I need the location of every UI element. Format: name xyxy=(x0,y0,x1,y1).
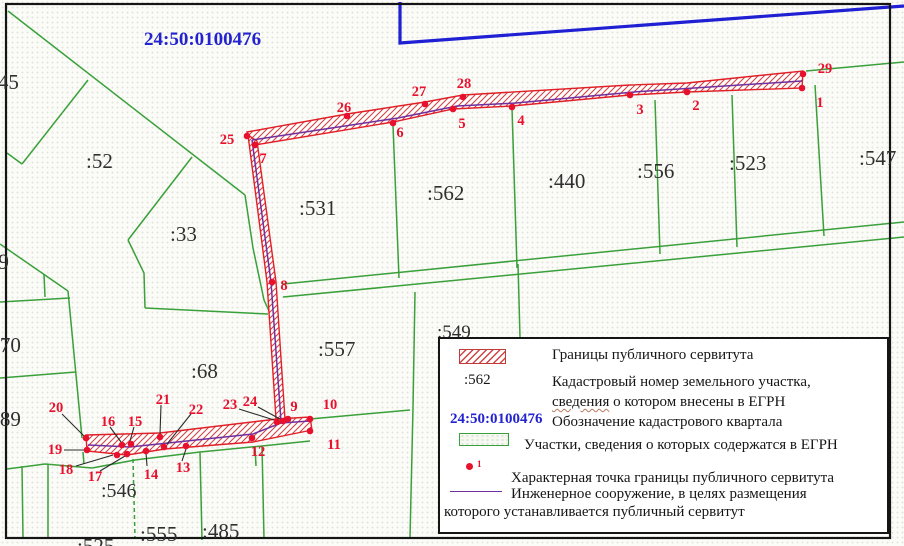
legend-engineering-label-line1: Инженерное сооружение, в целях размещени… xyxy=(511,485,807,503)
servitude-point-label: 14 xyxy=(144,467,159,483)
parcel-label: :525 xyxy=(77,534,114,546)
servitude-point-label: 8 xyxy=(280,278,287,294)
servitude-point-label: 11 xyxy=(327,437,341,453)
servitude-point-dot xyxy=(157,434,164,441)
servitude-point-dot xyxy=(143,448,150,455)
leader-line xyxy=(146,453,147,466)
servitude-point-dot xyxy=(269,279,276,286)
servitude-point-dot xyxy=(84,447,91,454)
servitude-point-label: 20 xyxy=(49,400,64,416)
servitude-point-label: 19 xyxy=(48,442,63,458)
servitude-point-dot xyxy=(460,94,467,101)
leader-line xyxy=(76,455,113,466)
green-parcel-line xyxy=(0,298,70,302)
servitude-point-label: 25 xyxy=(220,132,235,148)
green-parcel-line xyxy=(410,292,415,538)
servitude-point-dot xyxy=(183,443,190,450)
parcel-label: :45 xyxy=(0,70,19,94)
parcel-label: :485 xyxy=(202,519,239,543)
legend-box: Границы публичного сервитута :562 Кадаст… xyxy=(438,337,889,534)
servitude-boundary-swatch xyxy=(459,349,506,364)
green-parcel-line xyxy=(68,291,82,438)
parcel-label: :547 xyxy=(859,146,896,170)
parcel-label: :68 xyxy=(191,359,218,383)
characteristic-point-swatch xyxy=(466,463,473,470)
green-parcel-line xyxy=(393,125,399,278)
cadastral-map-sheet: 1234567891011121314151617181920212223242… xyxy=(0,0,904,546)
green-parcel-line xyxy=(283,237,904,297)
servitude-point-dot xyxy=(249,435,256,442)
servitude-point-dot xyxy=(119,442,126,449)
parcel-label: :70 xyxy=(0,333,21,357)
parcel-label: :52 xyxy=(86,149,113,173)
green-parcel-line xyxy=(512,108,517,268)
servitude-point-dot xyxy=(161,444,168,451)
servitude-point-dot xyxy=(252,142,259,149)
leader-line xyxy=(160,405,161,434)
parcel-label: 9 xyxy=(0,249,9,274)
characteristic-point-number: 1 xyxy=(477,459,482,469)
servitude-point-dot xyxy=(280,418,287,425)
legend-line2-rest: о котором внесены в ЕГРН xyxy=(609,394,785,410)
quarter-boundary-line xyxy=(400,2,904,43)
servitude-point-label: 27 xyxy=(412,84,427,100)
servitude-point-label: 12 xyxy=(251,444,266,460)
green-parcel-line xyxy=(0,372,76,378)
servitude-point-label: 10 xyxy=(323,397,338,413)
servitude-point-dot xyxy=(307,428,314,435)
servitude-point-label: 28 xyxy=(457,76,472,92)
parcel-label: :555 xyxy=(140,522,177,546)
green-parcel-line xyxy=(128,240,145,308)
servitude-point-label: 3 xyxy=(636,102,643,118)
servitude-point-dot xyxy=(114,452,121,459)
servitude-point-dot xyxy=(124,451,131,458)
servitude-point-label: 21 xyxy=(156,392,171,408)
parcel-label: :33 xyxy=(170,222,197,246)
servitude-point-label: 22 xyxy=(189,402,204,418)
servitude-point-label: 18 xyxy=(59,462,74,478)
servitude-point-dot xyxy=(799,85,806,92)
legend-egrn-parcels-label: Участки, сведения о которых содержатся в… xyxy=(524,436,838,454)
legend-quarter-number-sample: 24:50:0100476 xyxy=(450,411,543,428)
servitude-point-label: 5 xyxy=(458,116,465,132)
green-parcel-line xyxy=(145,308,268,314)
parcel-label: :523 xyxy=(729,151,766,175)
green-parcel-line xyxy=(83,452,84,464)
servitude-point-label: 13 xyxy=(176,460,191,476)
green-parcel-line xyxy=(7,153,22,164)
parcel-label: :556 xyxy=(637,159,674,183)
servitude-point-dot xyxy=(307,416,314,423)
servitude-point-dot xyxy=(244,133,251,140)
servitude-point-label: 6 xyxy=(396,125,403,141)
servitude-top-band xyxy=(247,71,803,145)
legend-engineering-label-line2: которого устанавливается публичный серви… xyxy=(444,503,745,521)
parcel-label: :546 xyxy=(101,480,137,502)
servitude-point-dot xyxy=(128,441,135,448)
servitude-point-label: 4 xyxy=(517,113,524,129)
green-parcel-line xyxy=(0,244,68,291)
parcel-label: :531 xyxy=(299,196,336,220)
green-parcel-line xyxy=(518,264,520,337)
servitude-point-label: 24 xyxy=(243,394,258,410)
servitude-point-dot xyxy=(450,106,457,113)
servitude-point-dot xyxy=(509,104,516,111)
servitude-point-label: 29 xyxy=(818,61,833,77)
servitude-point-label: 15 xyxy=(128,414,143,430)
engineering-structure-swatch xyxy=(450,491,502,492)
legend-quarter-label: Обозначение кадастрового квартала xyxy=(552,413,782,431)
servitude-point-label: 1 xyxy=(816,95,823,111)
legend-parcel-number-label-line2: сведения о котором внесены в ЕГРН xyxy=(552,393,785,411)
servitude-point-label: 7 xyxy=(259,151,266,167)
servitude-point-dot xyxy=(83,435,90,442)
green-parcel-line xyxy=(22,466,23,538)
servitude-point-dot xyxy=(627,92,634,99)
servitude-point-dot xyxy=(274,419,281,426)
parcel-label: :562 xyxy=(427,181,464,205)
legend-parcel-number-label-line1: Кадастровый номер земельного участка, xyxy=(552,373,811,391)
servitude-point-label: 23 xyxy=(223,397,238,413)
cadastral-quarter-label: 24:50:0100476 xyxy=(144,29,261,50)
leader-line xyxy=(239,409,274,420)
servitude-point-dot xyxy=(422,101,429,108)
legend-servitude-label: Границы публичного сервитута xyxy=(552,346,753,364)
parcel-label: :557 xyxy=(318,337,355,361)
parcel-label: :440 xyxy=(548,169,585,193)
servitude-point-dot xyxy=(390,120,397,127)
legend-parcel-number-sample: :562 xyxy=(464,372,491,389)
servitude-point-label: 16 xyxy=(101,414,116,430)
servitude-point-label: 9 xyxy=(290,399,297,415)
servitude-point-label: 26 xyxy=(337,100,352,116)
green-parcel-line xyxy=(44,274,45,297)
green-parcel-line xyxy=(283,222,904,284)
parcel-label: :89 xyxy=(0,407,21,431)
servitude-point-label: 2 xyxy=(692,98,699,114)
servitude-point-dot xyxy=(684,89,691,96)
green-parcel-line xyxy=(22,80,88,164)
egrn-parcel-swatch xyxy=(459,433,509,446)
servitude-vertical-band xyxy=(248,135,285,419)
legend-wavy-word: сведения xyxy=(552,394,609,410)
servitude-point-dot xyxy=(800,71,807,78)
